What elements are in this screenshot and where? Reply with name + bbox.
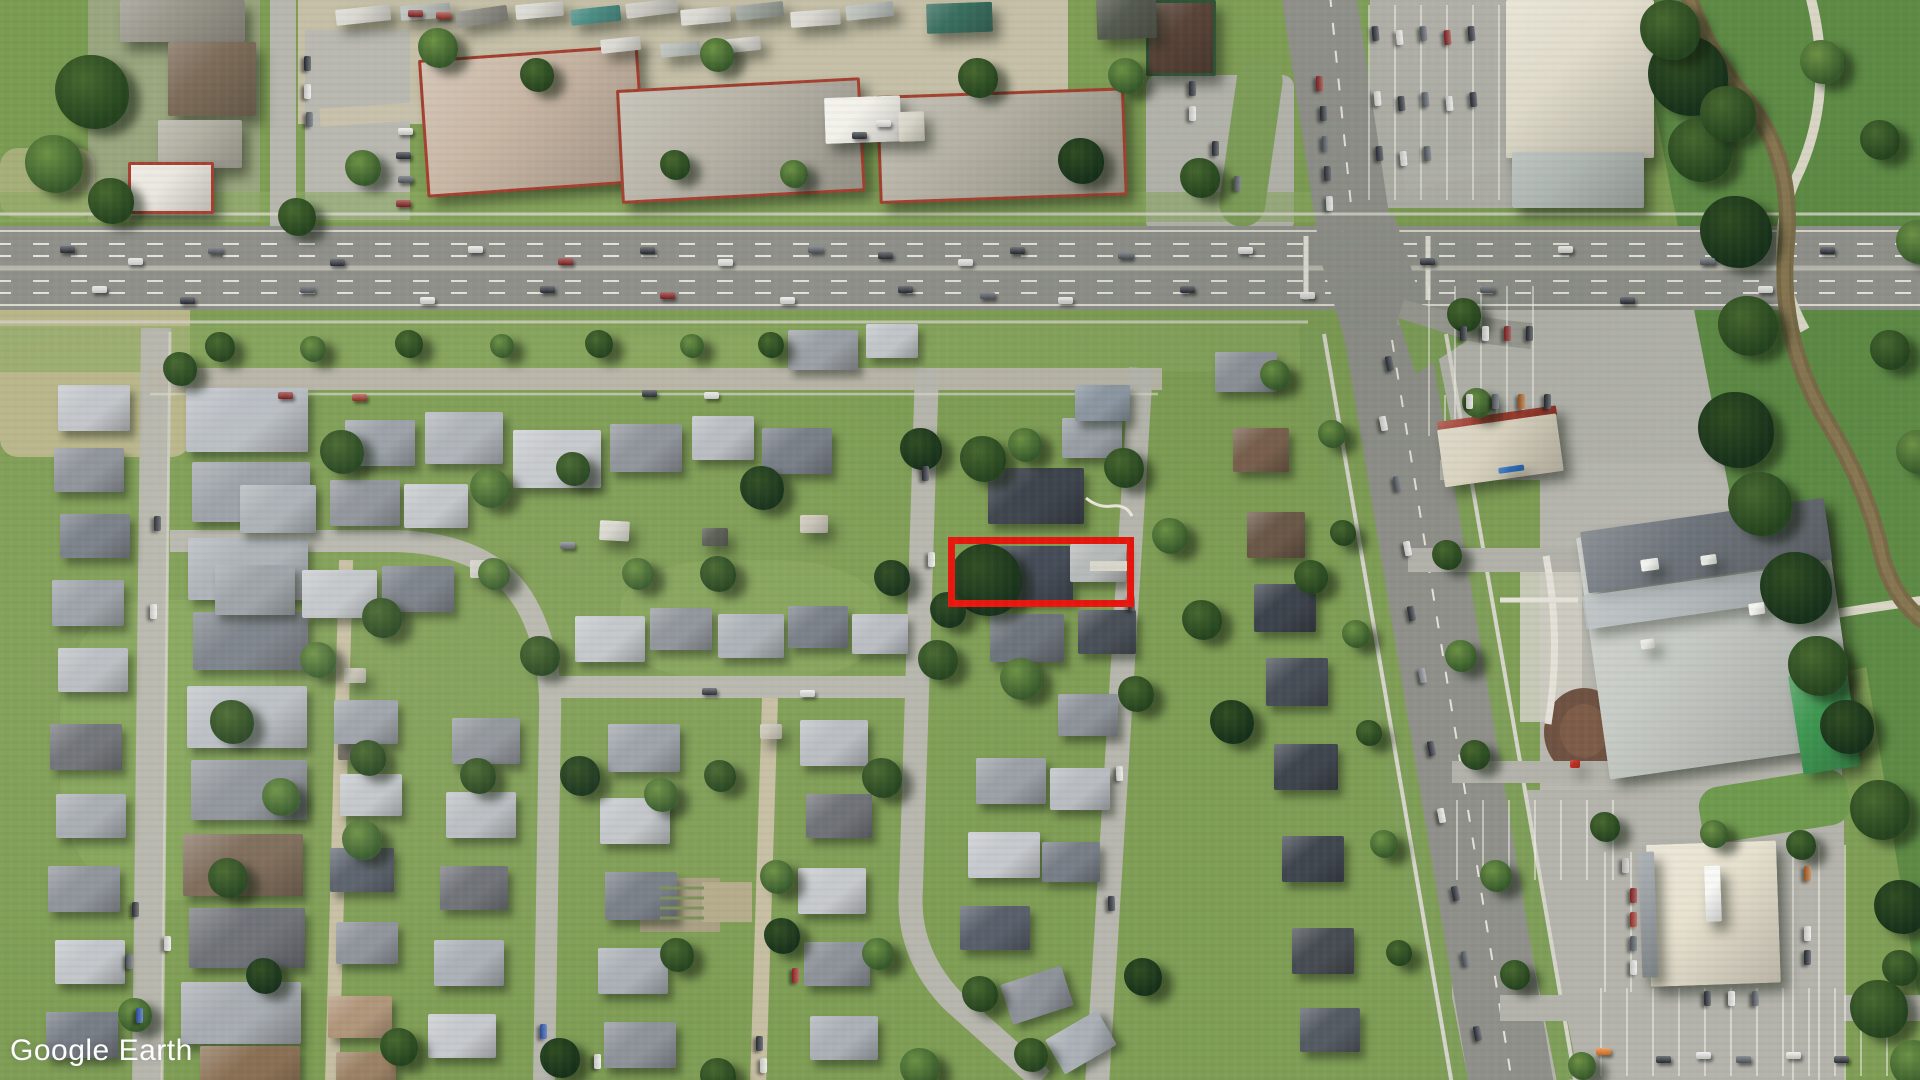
- property-highlight-box: [948, 537, 1134, 607]
- satellite-map-viewport[interactable]: Google Earth: [0, 0, 1920, 1080]
- google-earth-watermark: Google Earth: [10, 1036, 193, 1066]
- front-walkway: [1086, 498, 1132, 516]
- garden-rows: [660, 888, 704, 918]
